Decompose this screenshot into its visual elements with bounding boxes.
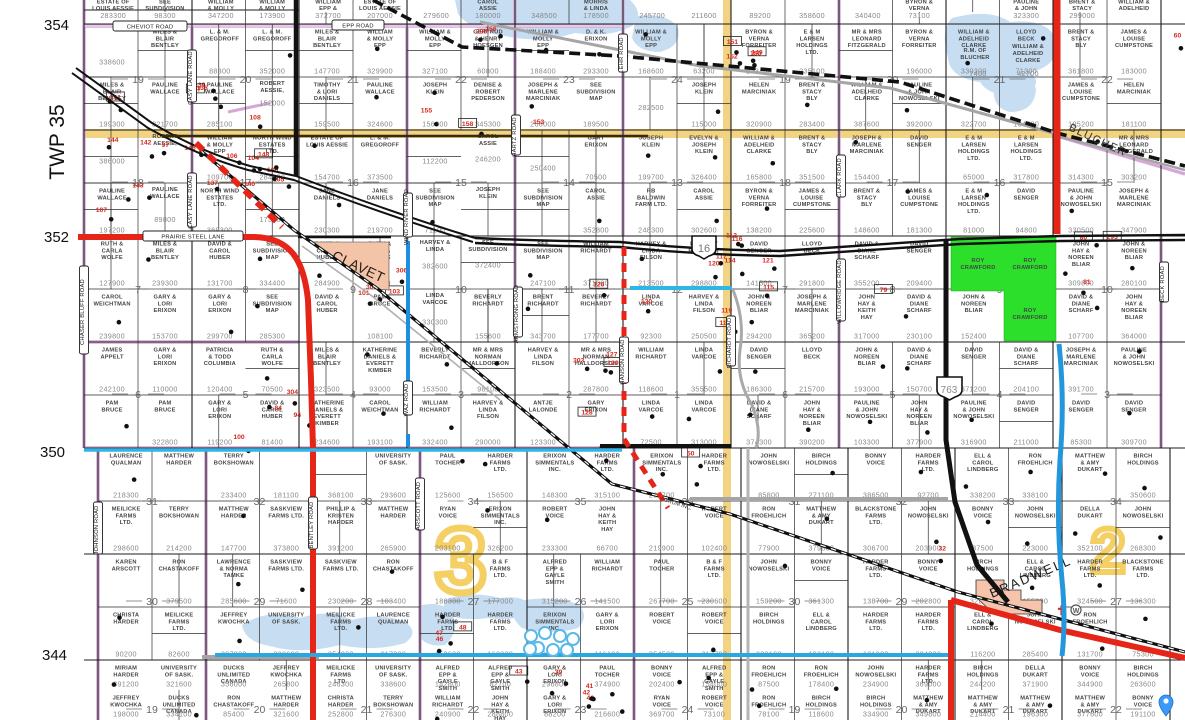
svg-text:HARDER: HARDER [915,454,941,460]
svg-text:FARMS: FARMS [865,619,886,625]
svg-text:DAVID: DAVID [750,242,768,248]
svg-text:48: 48 [459,624,467,631]
svg-text:VOICE: VOICE [973,513,992,519]
svg-text:CAROL: CAROL [369,401,391,407]
svg-text:KATHERINE: KATHERINE [310,401,345,407]
svg-text:82600: 82600 [168,650,190,659]
svg-text:NOWOSELSKI: NOWOSELSKI [1114,361,1155,367]
svg-text:349800: 349800 [915,710,941,719]
svg-text:152400: 152400 [961,332,987,341]
svg-text:BRUCE: BRUCE [154,407,175,413]
svg-text:81: 81 [1083,279,1091,286]
svg-text:390200: 390200 [799,438,825,447]
svg-text:372700: 372700 [315,11,341,20]
svg-text:PAULINE: PAULINE [1068,189,1094,195]
svg-text:CRAWFORD: CRAWFORD [1012,265,1047,271]
svg-text:WILLIAM: WILLIAM [435,696,461,702]
svg-text:317000: 317000 [854,332,880,341]
svg-text:RICHARDT: RICHARDT [419,407,451,413]
svg-text:GARY &: GARY & [208,295,231,301]
svg-text:JEFFREY: JEFFREY [273,666,300,672]
svg-text:BLUCHER: BLUCHER [960,55,989,61]
svg-text:RICHARDT: RICHARDT [592,566,624,572]
svg-text:280100: 280100 [1121,279,1147,288]
svg-text:HALLDORSON: HALLDORSON [467,361,509,367]
svg-text:CAROL: CAROL [316,301,338,307]
svg-text:DUCKS: DUCKS [223,666,244,672]
svg-text:306: 306 [396,268,408,275]
svg-text:24: 24 [682,704,694,716]
svg-text:ELL &: ELL & [974,454,991,460]
svg-text:B & F: B & F [492,560,508,566]
svg-text:ALFRED: ALFRED [436,666,460,672]
svg-text:77900: 77900 [758,544,780,553]
svg-text:VOICE: VOICE [705,619,724,625]
svg-text:NOREEN: NOREEN [906,414,932,420]
svg-text:246300: 246300 [328,680,354,689]
svg-text:HOLDINGS: HOLDINGS [860,702,892,708]
svg-text:LTD.: LTD. [967,209,980,215]
svg-text:LORI: LORI [213,407,228,413]
svg-text:HARDER: HARDER [701,454,727,460]
svg-text:215700: 215700 [799,385,825,394]
svg-text:115: 115 [763,284,774,291]
svg-text:326200: 326200 [487,544,513,553]
svg-text:ROY: ROY [1024,258,1037,264]
svg-text:351500: 351500 [799,173,825,182]
svg-text:HAY &: HAY & [803,407,821,413]
svg-text:347900: 347900 [1121,226,1147,235]
svg-text:RICHARDT: RICHARDT [472,301,504,307]
svg-text:17: 17 [887,177,899,189]
svg-text:JOHN &: JOHN & [962,295,985,301]
svg-text:118600: 118600 [638,385,663,394]
svg-text:MEILICKE: MEILICKE [165,613,194,619]
svg-text:347200: 347200 [208,11,234,20]
svg-text:103300: 103300 [854,438,880,447]
svg-text:BIRCH: BIRCH [973,666,992,672]
svg-text:HOLDINGS: HOLDINGS [958,202,990,208]
svg-text:FARMS: FARMS [437,619,458,625]
svg-text:HARVEY &: HARVEY & [420,240,451,246]
svg-text:283300: 283300 [100,11,126,20]
svg-text:ERIXON: ERIXON [543,613,566,619]
svg-text:NORMAN: NORMAN [475,354,502,360]
svg-text:391700: 391700 [1068,385,1094,394]
svg-text:L. & M.: L. & M. [262,30,282,36]
svg-text:WIND RIVER ROAD: WIND RIVER ROAD [404,189,410,245]
svg-text:HOLDINGS: HOLDINGS [958,149,990,155]
svg-text:FORREITER: FORREITER [742,202,777,208]
svg-text:118600: 118600 [809,710,834,719]
svg-text:LTD.: LTD. [334,626,347,632]
svg-text:KWOCHKA: KWOCHKA [110,702,142,708]
svg-text:BLIAR: BLIAR [910,421,928,427]
svg-text:LTD.: LTD. [1020,156,1033,162]
svg-text:DAVID &: DAVID & [907,295,931,301]
svg-text:LTD.: LTD. [494,626,507,632]
svg-text:WILLIAM: WILLIAM [208,0,234,6]
svg-text:KLEIN: KLEIN [695,149,713,155]
svg-text:BLACKSTONE: BLACKSTONE [855,507,896,513]
svg-text:JOHN: JOHN [761,560,778,566]
svg-text:60800: 60800 [477,67,499,76]
svg-text:JOSEPH: JOSEPH [423,83,447,89]
svg-text:94800: 94800 [1016,226,1038,235]
svg-text:294200: 294200 [746,332,772,341]
svg-text:BONNY: BONNY [1079,666,1101,672]
svg-text:PAULINE: PAULINE [152,187,178,193]
svg-text:LOUISE: LOUISE [801,195,823,201]
svg-text:120: 120 [708,260,720,267]
svg-text:88300: 88300 [209,67,231,76]
svg-text:PAUL: PAUL [599,666,615,672]
svg-text:FARMS: FARMS [918,619,939,625]
svg-text:352: 352 [44,229,69,246]
svg-text:90200: 90200 [115,650,137,659]
svg-text:CAROL: CAROL [811,619,833,625]
svg-text:MEILICKE: MEILICKE [326,613,355,619]
svg-text:ROBERT: ROBERT [702,613,728,619]
svg-text:PAUL: PAUL [654,560,670,566]
svg-text:149: 149 [751,49,763,56]
svg-text:EVELYN &: EVELYN & [689,136,719,142]
svg-text:70500: 70500 [585,173,607,182]
svg-text:364000: 364000 [1121,332,1147,341]
svg-text:ALFRED: ALFRED [702,666,726,672]
svg-text:70500: 70500 [262,385,284,394]
svg-text:ASSIE: ASSIE [695,195,713,201]
svg-text:203900: 203900 [915,544,941,553]
svg-text:JEFFREY: JEFFREY [220,613,247,619]
svg-text:MAP: MAP [536,255,549,261]
svg-text:JOHNSON ROAD: JOHNSON ROAD [94,505,100,554]
svg-text:SENGER: SENGER [907,248,932,254]
svg-text:RON: RON [1083,613,1096,619]
svg-text:MARCINIAK: MARCINIAK [795,308,830,314]
svg-text:CUMPSTONE: CUMPSTONE [900,202,938,208]
svg-text:SENGER: SENGER [1068,407,1093,413]
svg-text:NOWOSELSKI: NOWOSELSKI [1061,202,1102,208]
svg-text:PRAIRIE STEEL LANE: PRAIRIE STEEL LANE [161,235,224,241]
svg-text:HOLDINGS: HOLDINGS [1010,149,1042,155]
svg-text:BEVERLY: BEVERLY [421,348,449,354]
svg-text:KIMBER: KIMBER [315,421,339,427]
svg-text:LAURENCE: LAURENCE [109,454,142,460]
svg-text:358600: 358600 [799,11,825,20]
svg-text:HELEN: HELEN [749,83,769,89]
svg-text:BENTLEY: BENTLEY [313,361,341,367]
svg-text:34: 34 [1110,496,1122,508]
svg-text:22: 22 [455,74,467,86]
svg-text:130: 130 [641,299,653,306]
svg-text:3: 3 [458,389,464,401]
svg-text:WILLOWRIDGE ROAD: WILLOWRIDGE ROAD [837,260,843,323]
svg-text:UNIVERSITY: UNIVERSITY [268,613,304,619]
svg-text:& MOLLY: & MOLLY [207,142,233,148]
svg-text:BYRON &: BYRON & [745,30,773,36]
svg-text:GARY &: GARY & [543,696,566,702]
svg-text:216600: 216600 [594,710,620,719]
svg-text:ROY: ROY [972,258,985,264]
svg-text:VOICE: VOICE [652,672,671,678]
svg-text:32: 32 [939,546,947,553]
svg-text:29: 29 [896,596,908,608]
svg-text:143: 143 [132,183,144,190]
svg-text:BLAIR: BLAIR [318,354,336,360]
svg-text:EVERETT: EVERETT [313,414,341,420]
svg-text:34: 34 [468,496,480,508]
svg-text:110000: 110000 [152,385,177,394]
svg-text:FARMS: FARMS [490,566,511,572]
svg-text:QUALMAN: QUALMAN [378,619,408,625]
svg-text:287800: 287800 [583,385,609,394]
svg-text:JOHN &: JOHN & [1123,242,1146,248]
svg-text:NOREEN: NOREEN [746,301,772,307]
svg-text:LTD.: LTD. [869,520,882,526]
svg-text:355200: 355200 [854,279,880,288]
svg-text:13: 13 [671,177,683,189]
svg-text:39: 39 [555,669,563,676]
svg-text:ARSCOTT ROAD: ARSCOTT ROAD [416,482,422,530]
svg-text:RICHARDT: RICHARDT [527,301,559,307]
svg-text:MAP: MAP [536,202,549,208]
svg-text:JOHN: JOHN [859,295,876,301]
svg-text:BYRON &: BYRON & [905,30,933,36]
svg-text:VOICE: VOICE [705,702,724,708]
svg-text:JAMES: JAMES [102,348,123,354]
svg-text:BRENT &: BRENT & [1068,30,1095,36]
svg-text:HARDER: HARDER [166,460,192,466]
svg-text:NOWOSELSKI: NOWOSELSKI [846,414,887,420]
svg-text:WILLIAM: WILLIAM [259,0,285,6]
svg-text:302600: 302600 [691,226,717,235]
svg-text:338100: 338100 [1022,491,1048,500]
svg-text:WILLIAM &: WILLIAM & [958,30,990,36]
svg-text:SENGER: SENGER [907,142,932,148]
svg-text:UNIVERSITY: UNIVERSITY [161,666,197,672]
svg-text:JOHN &: JOHN & [855,348,878,354]
svg-text:321600: 321600 [166,680,192,689]
svg-text:116200: 116200 [970,650,995,659]
svg-text:LTD.: LTD. [601,467,614,473]
svg-text:326400: 326400 [691,173,717,182]
svg-text:242100: 242100 [99,385,125,394]
svg-text:PAUL: PAUL [440,454,456,460]
svg-text:FROEHLICH: FROEHLICH [804,672,839,678]
svg-text:BALDWIN: BALDWIN [637,195,665,201]
svg-text:WEICHTMAN: WEICHTMAN [361,407,398,413]
svg-text:SASKVIEW: SASKVIEW [270,560,302,566]
svg-text:26: 26 [575,596,587,608]
svg-text:16: 16 [347,177,359,189]
svg-text:DAVID &: DAVID & [1014,348,1038,354]
svg-text:MATTHEW: MATTHEW [1075,454,1105,460]
svg-text:JOHN: JOHN [1027,507,1044,513]
svg-text:SUBDIVISION: SUBDIVISION [468,247,507,253]
svg-text:MR & MRS: MR & MRS [852,30,882,36]
svg-text:& AMY: & AMY [1081,460,1100,466]
svg-text:354: 354 [44,17,69,34]
svg-text:& TODD: & TODD [208,354,231,360]
svg-text:PAULINE: PAULINE [1121,348,1147,354]
svg-text:73100: 73100 [909,11,931,20]
svg-text:392000: 392000 [906,120,932,129]
svg-text:LAWRENCE: LAWRENCE [217,560,251,566]
svg-text:JOHN: JOHN [868,666,885,672]
svg-text:JOSEPH &: JOSEPH & [528,83,558,89]
svg-text:ROBERT: ROBERT [475,89,501,95]
svg-text:293300: 293300 [583,67,609,76]
svg-text:371900: 371900 [1022,680,1048,689]
svg-text:82700: 82700 [490,680,512,689]
svg-text:373500: 373500 [367,173,393,182]
svg-text:MILES &: MILES & [315,348,339,354]
svg-text:CAROL: CAROL [477,0,499,6]
svg-text:178500: 178500 [583,11,609,20]
svg-text:& LORI: & LORI [317,89,338,95]
svg-text:CLARKE: CLARKE [1016,58,1041,64]
svg-text:338600: 338600 [380,680,406,689]
svg-text:DIANE: DIANE [910,354,929,360]
svg-text:87500: 87500 [972,544,994,553]
svg-text:JANE: JANE [372,189,388,195]
svg-text:763: 763 [941,385,958,396]
svg-text:EPP: EPP [429,43,441,49]
svg-text:SIMMENTALS: SIMMENTALS [642,460,681,466]
svg-text:MILES &: MILES & [153,242,177,248]
svg-text:21: 21 [361,704,373,716]
svg-text:BECK ROAD: BECK ROAD [1160,266,1166,302]
svg-text:285100: 285100 [207,120,233,129]
svg-text:MAP: MAP [266,255,279,261]
svg-text:MARLENE: MARLENE [797,301,827,307]
svg-text:WILLIAM: WILLIAM [638,348,664,354]
svg-text:123300: 123300 [530,438,556,447]
svg-text:INC.: INC. [494,520,506,526]
svg-text:BLAIR: BLAIR [156,36,174,42]
svg-text:STACY: STACY [802,89,822,95]
svg-text:D. & K.: D. & K. [586,30,606,36]
svg-text:155600: 155600 [475,332,501,341]
svg-text:147700: 147700 [314,67,340,76]
svg-text:FARMS: FARMS [918,672,939,678]
svg-text:LORI: LORI [548,702,563,708]
svg-text:LOUISE: LOUISE [908,195,930,201]
svg-text:150700: 150700 [906,385,932,394]
svg-text:TERRY: TERRY [224,454,244,460]
svg-text:LORI: LORI [158,354,173,360]
svg-text:DAVID &: DAVID & [315,295,339,301]
svg-text:& JOHN: & JOHN [962,407,985,413]
svg-text:LARSEN: LARSEN [962,142,987,148]
svg-text:306700: 306700 [863,544,889,553]
svg-text:290000: 290000 [475,438,501,447]
svg-text:TAMKE: TAMKE [223,573,244,579]
svg-text:FARMS: FARMS [704,566,725,572]
svg-text:GARY &: GARY & [208,401,231,407]
svg-text:PAULINE: PAULINE [207,83,233,89]
svg-text:BOKSHOWAN: BOKSHOWAN [373,702,413,708]
svg-text:HOLDINGS: HOLDINGS [753,619,785,625]
svg-text:SIMMENTALS: SIMMENTALS [481,513,520,519]
svg-text:FARMS: FARMS [330,672,351,678]
svg-text:SEE: SEE [429,189,441,195]
svg-text:LTD.: LTD. [922,467,935,473]
svg-text:WILLIAM: WILLIAM [594,560,620,566]
svg-text:SUBDIVISION: SUBDIVISION [576,89,615,95]
svg-text:199300: 199300 [99,120,125,129]
svg-text:HARDER: HARDER [113,672,139,678]
svg-text:BLIAR: BLIAR [750,308,768,314]
svg-text:HARDER: HARDER [915,666,941,672]
svg-text:LORI: LORI [600,619,615,625]
svg-text:MEILICKE: MEILICKE [112,507,141,513]
svg-text:CLARKE: CLARKE [747,149,772,155]
svg-text:WALLACE: WALLACE [365,89,395,95]
svg-text:LTD.: LTD. [120,520,133,526]
svg-text:MORRIS: MORRIS [584,0,608,6]
svg-text:PAULINE: PAULINE [961,401,987,407]
svg-text:RON: RON [762,696,775,702]
svg-text:144: 144 [107,137,119,144]
svg-text:WAZ ROAD: WAZ ROAD [404,384,410,417]
svg-text:GREGOROFF: GREGOROFF [361,142,400,148]
svg-text:108100: 108100 [367,332,393,341]
svg-text:CAROL: CAROL [585,189,607,195]
svg-text:20: 20 [896,704,908,716]
svg-text:LTD.: LTD. [805,50,818,56]
svg-text:239300: 239300 [152,279,178,288]
svg-text:209400: 209400 [906,279,932,288]
svg-text:LTD.: LTD. [1084,573,1097,579]
svg-text:263600: 263600 [1130,680,1156,689]
svg-text:COLUMBIA: COLUMBIA [204,361,236,367]
svg-text:180000: 180000 [475,11,501,20]
svg-text:CAROL: CAROL [972,460,994,466]
svg-text:186300: 186300 [746,385,772,394]
svg-text:9: 9 [350,284,356,296]
svg-text:103: 103 [389,288,401,295]
svg-text:BRENT: BRENT [533,295,554,301]
svg-text:168600: 168600 [638,67,664,76]
svg-text:APPELT: APPELT [100,354,124,360]
svg-text:LINDBERG: LINDBERG [806,626,838,632]
svg-text:EPP: EPP [645,43,657,49]
svg-text:HARVEY &: HARVEY & [528,348,559,354]
svg-text:LOUISE: LOUISE [1070,89,1092,95]
svg-text:88200: 88200 [544,710,566,719]
svg-text:LTD.: LTD. [922,626,935,632]
svg-text:PATRICIA: PATRICIA [206,348,234,354]
svg-text:CUMPSTONE: CUMPSTONE [793,202,831,208]
svg-text:MR & MRS: MR & MRS [1119,136,1149,142]
svg-text:FARMS: FARMS [1080,566,1101,572]
svg-text:CHRISTA: CHRISTA [328,696,354,702]
svg-text:TOCHER: TOCHER [649,566,674,572]
svg-text:MATTHEW: MATTHEW [1075,696,1105,702]
svg-text:148600: 148600 [854,226,880,235]
svg-text:WALLACE: WALLACE [150,194,180,200]
svg-text:MARCINIAK: MARCINIAK [526,96,561,102]
svg-text:FARM LTD.: FARM LTD. [635,202,667,208]
svg-text:NOREEN: NOREEN [961,301,987,307]
svg-text:92300: 92300 [640,332,662,341]
svg-text:21: 21 [994,74,1006,86]
svg-text:299700: 299700 [207,332,233,341]
svg-text:LLOYD: LLOYD [1016,30,1036,36]
svg-text:BONNY: BONNY [865,454,887,460]
